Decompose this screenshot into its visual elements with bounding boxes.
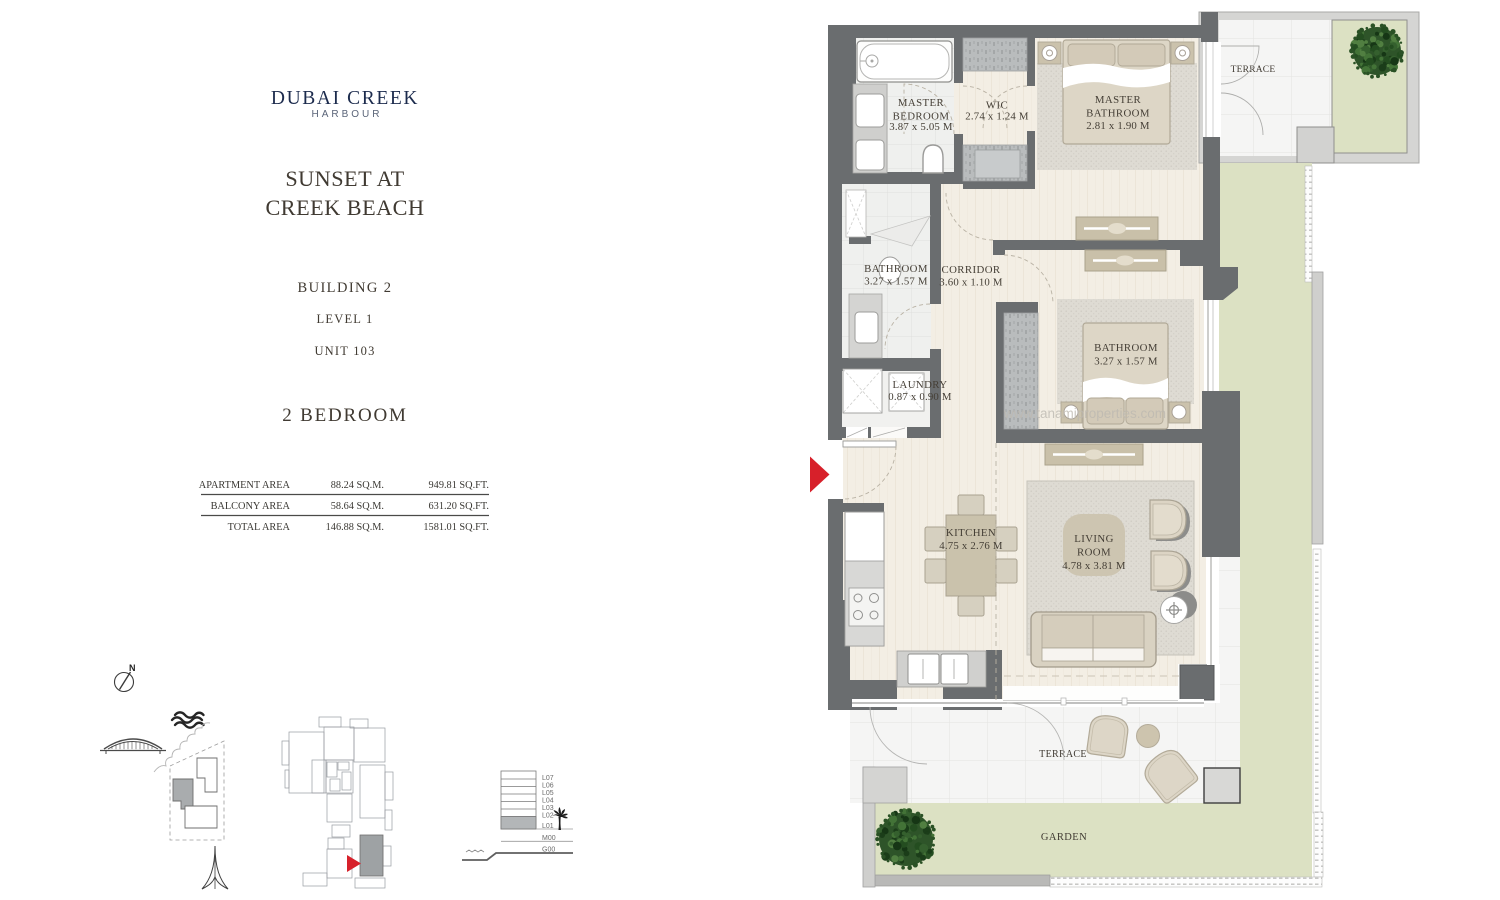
svg-text:3.27 x 1.57 M: 3.27 x 1.57 M [1094, 356, 1158, 368]
svg-text:CREEK BEACH: CREEK BEACH [266, 195, 425, 220]
svg-text:L04: L04 [542, 798, 554, 805]
svg-text:GARDEN: GARDEN [1041, 832, 1087, 843]
svg-text:631.20 SQ.FT.: 631.20 SQ.FT. [429, 501, 489, 512]
svg-text:2.81 x 1.90 M: 2.81 x 1.90 M [1086, 120, 1150, 132]
svg-text:G00: G00 [542, 847, 555, 854]
svg-text:BATHROOM: BATHROOM [864, 263, 928, 275]
svg-text:LIVING: LIVING [1074, 533, 1114, 545]
svg-text:4.78 x 3.81 M: 4.78 x 3.81 M [1062, 560, 1126, 572]
svg-text:APARTMENT AREA: APARTMENT AREA [199, 480, 291, 491]
svg-text:L02: L02 [542, 813, 554, 820]
svg-text:N: N [129, 663, 136, 673]
svg-text:58.64 SQ.M.: 58.64 SQ.M. [331, 501, 384, 512]
svg-text:L05: L05 [542, 790, 554, 797]
svg-text:L01: L01 [542, 823, 554, 830]
svg-text:www.tanamiproperties.com: www.tanamiproperties.com [1003, 406, 1166, 421]
svg-text:CORRIDOR: CORRIDOR [942, 264, 1001, 276]
svg-text:MASTER: MASTER [898, 97, 945, 109]
svg-text:HARBOUR: HARBOUR [311, 109, 382, 120]
svg-text:BUILDING 2: BUILDING 2 [298, 280, 393, 296]
svg-text:BALCONY AREA: BALCONY AREA [211, 501, 291, 512]
svg-text:0.87 x 0.90 M: 0.87 x 0.90 M [888, 391, 952, 403]
svg-text:MASTER: MASTER [1095, 94, 1142, 106]
svg-text:2.74 x 1.24 M: 2.74 x 1.24 M [965, 111, 1029, 123]
svg-text:SUNSET AT: SUNSET AT [285, 166, 404, 191]
svg-text:949.81 SQ.FT.: 949.81 SQ.FT. [429, 480, 489, 491]
svg-text:KITCHEN: KITCHEN [946, 527, 996, 539]
svg-text:LAUNDRY: LAUNDRY [893, 379, 948, 391]
svg-text:TOTAL AREA: TOTAL AREA [228, 522, 291, 533]
svg-text:146.88 SQ.M.: 146.88 SQ.M. [326, 522, 384, 533]
svg-text:UNIT 103: UNIT 103 [314, 344, 375, 358]
svg-text:3.27 x 1.57 M: 3.27 x 1.57 M [864, 276, 928, 288]
svg-text:BATHROOM: BATHROOM [1086, 108, 1150, 120]
svg-text:L03: L03 [542, 805, 554, 812]
svg-text:2 BEDROOM: 2 BEDROOM [282, 405, 407, 426]
svg-text:DUBAI CREEK: DUBAI CREEK [271, 88, 419, 109]
svg-text:LEVEL 1: LEVEL 1 [317, 312, 374, 326]
svg-text:4.75 x 2.76 M: 4.75 x 2.76 M [939, 540, 1003, 552]
svg-text:1581.01 SQ.FT.: 1581.01 SQ.FT. [423, 522, 489, 533]
svg-text:88.24 SQ.M.: 88.24 SQ.M. [331, 480, 384, 491]
svg-text:3.60 x 1.10 M: 3.60 x 1.10 M [939, 277, 1003, 289]
svg-text:L06: L06 [542, 783, 554, 790]
svg-text:ROOM: ROOM [1077, 547, 1111, 559]
svg-text:BATHROOM: BATHROOM [1094, 342, 1158, 354]
svg-text:3.87 x 5.05 M: 3.87 x 5.05 M [889, 121, 953, 133]
svg-text:L07: L07 [542, 775, 554, 782]
svg-text:M00: M00 [542, 835, 556, 842]
